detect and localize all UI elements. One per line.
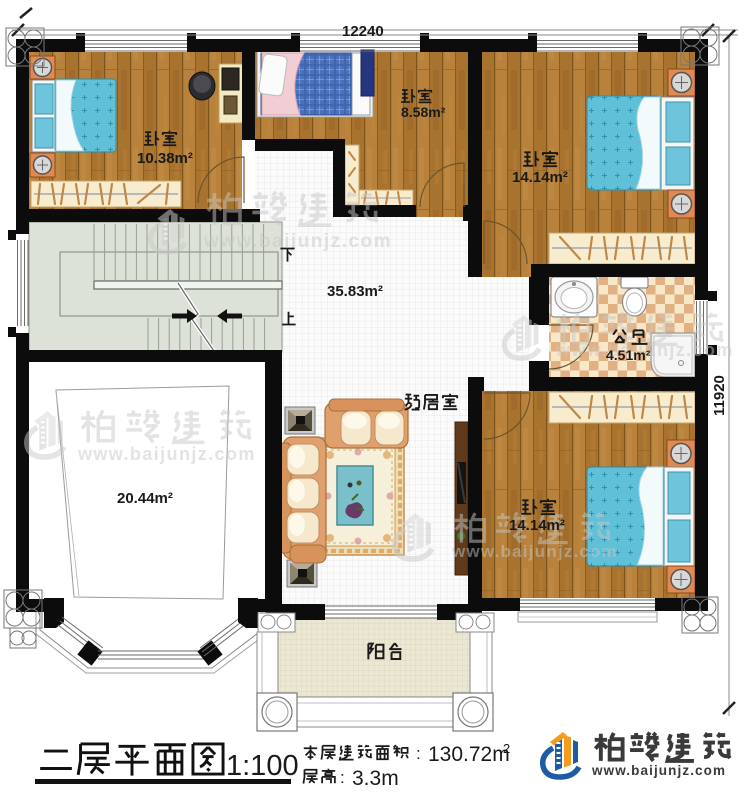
svg-text:www.baijunjz.com: www.baijunjz.com [203,231,392,252]
svg-text:12240: 12240 [342,23,384,40]
svg-text:14.14m²: 14.14m² [509,517,565,534]
svg-text:1:100: 1:100 [226,750,299,782]
svg-text:www.baijunjz.com: www.baijunjz.com [77,444,256,464]
svg-text:11920: 11920 [711,375,728,416]
svg-text:10.38m²: 10.38m² [137,150,193,167]
svg-text:35.83m²: 35.83m² [327,283,383,300]
svg-text:www.baijunjz.com: www.baijunjz.com [591,763,726,778]
svg-text:130.72m: 130.72m [428,743,510,766]
svg-text:20.44m²: 20.44m² [117,490,173,507]
svg-text:www.baijunjz.com: www.baijunjz.com [451,542,618,561]
svg-text::: : [416,744,421,763]
svg-text:4.51m²: 4.51m² [606,347,651,363]
svg-text:8.58m²: 8.58m² [401,104,446,120]
svg-text:3.3m: 3.3m [352,767,399,790]
svg-text:2: 2 [503,741,510,756]
svg-text::: : [340,768,345,787]
svg-text:14.14m²: 14.14m² [512,169,568,186]
